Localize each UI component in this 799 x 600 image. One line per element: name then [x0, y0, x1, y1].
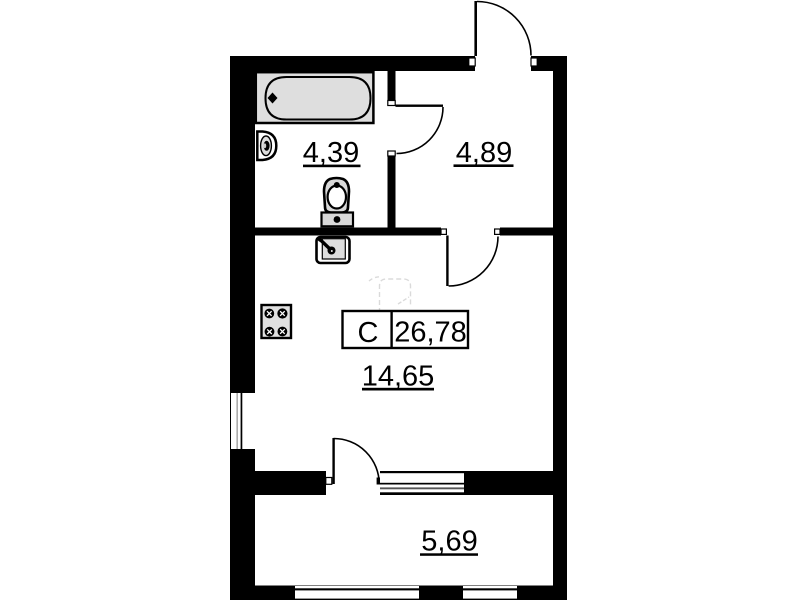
svg-text:26,78: 26,78 — [394, 317, 467, 349]
svg-text:4,39: 4,39 — [303, 137, 359, 169]
svg-text:5,69: 5,69 — [421, 526, 477, 558]
svg-text:4,89: 4,89 — [456, 137, 512, 169]
svg-text:14,65: 14,65 — [362, 361, 435, 393]
svg-text:С: С — [358, 317, 379, 349]
